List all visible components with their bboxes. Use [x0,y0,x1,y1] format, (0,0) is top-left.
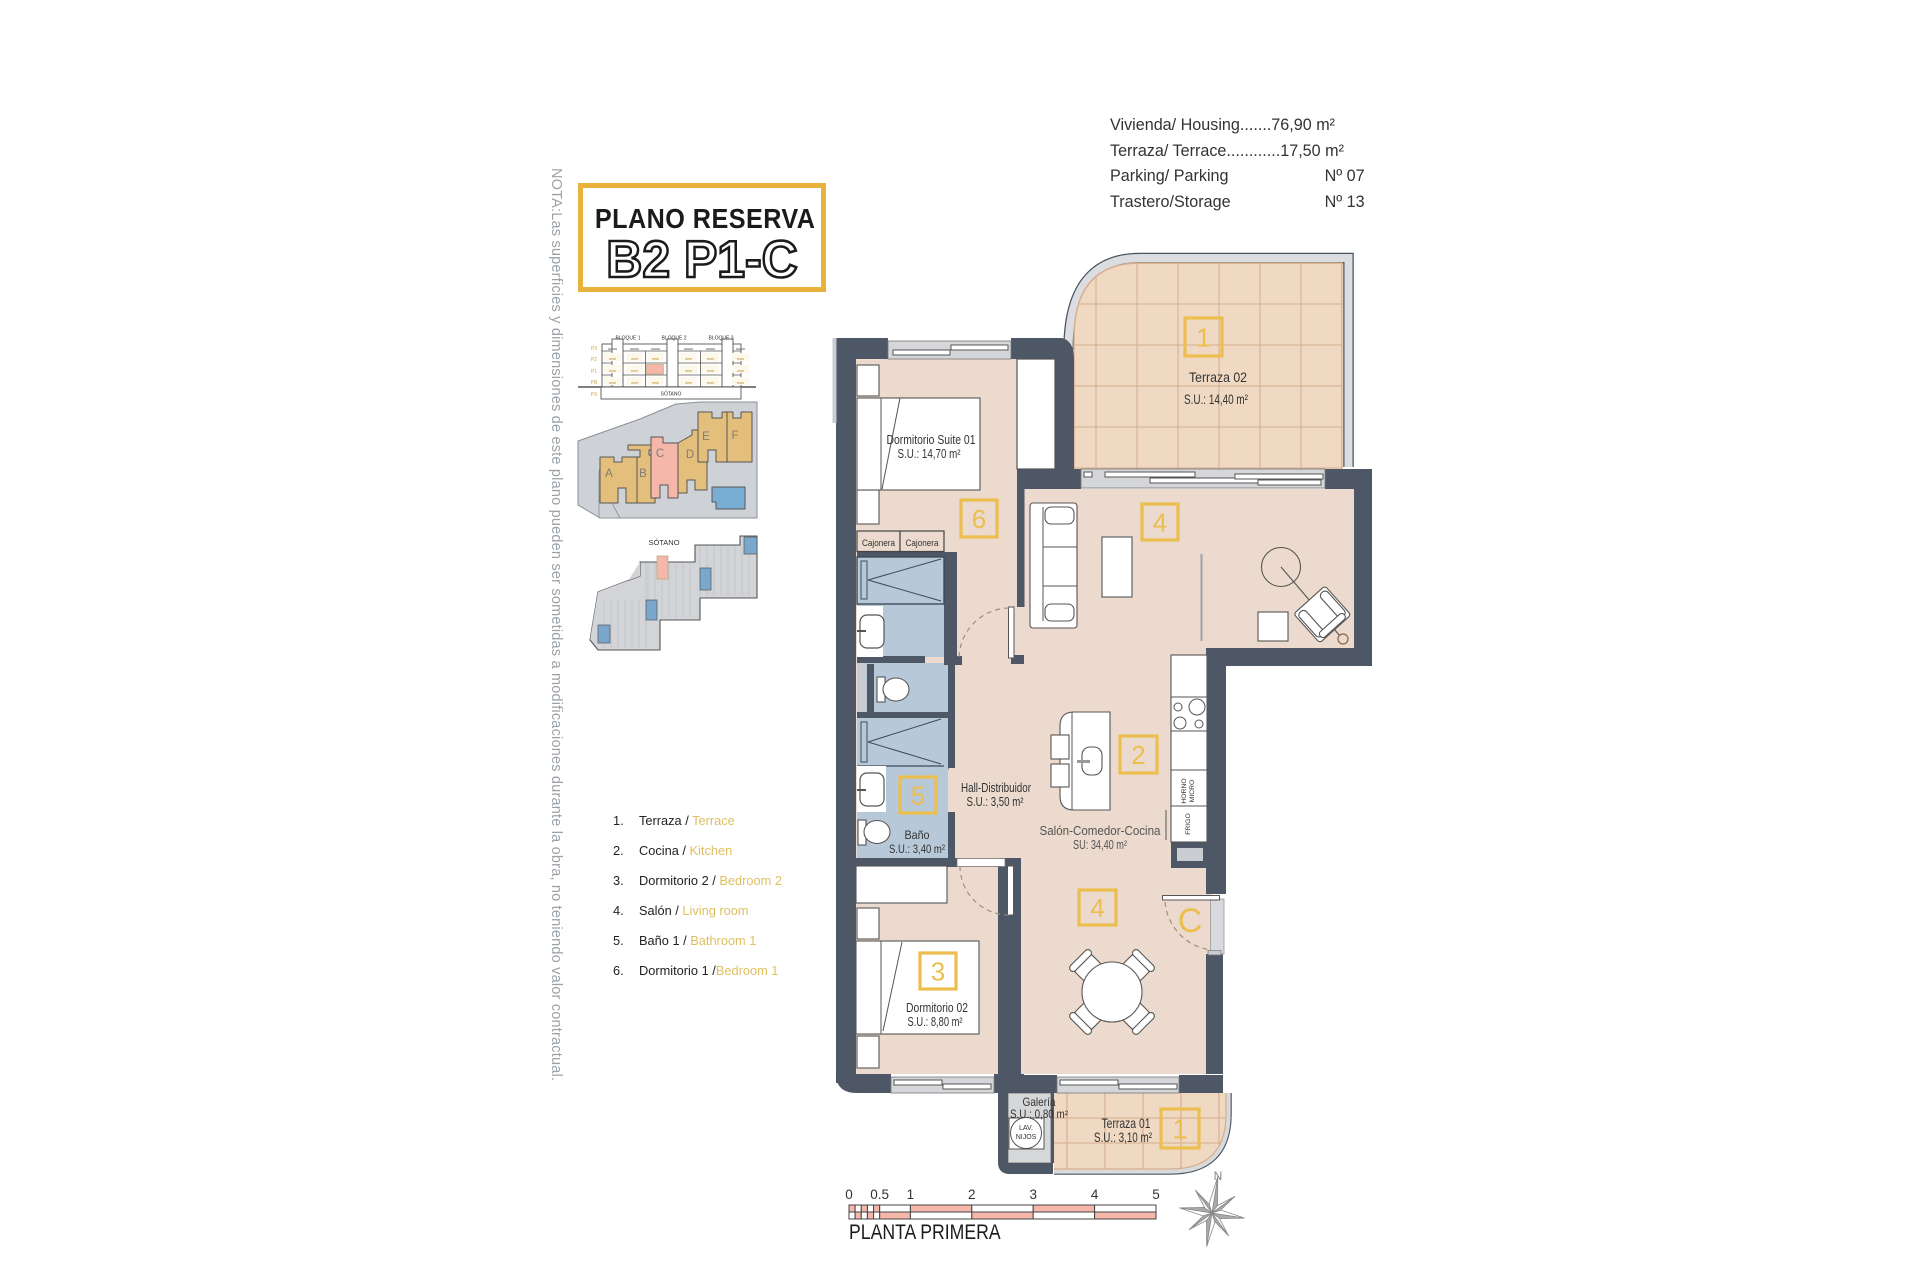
svg-text:2: 2 [1131,740,1145,770]
svg-text:▬▬▬: ▬▬▬ [651,347,660,351]
svg-text:▬▬▬: ▬▬▬ [706,347,715,351]
svg-text:▬▬▬: ▬▬▬ [736,347,745,351]
svg-text:S.U.: 14,70 m²: S.U.: 14,70 m² [898,446,962,461]
svg-text:Baño: Baño [905,828,930,842]
svg-text:▬▬▬: ▬▬▬ [608,347,617,351]
svg-text:▬▬▬: ▬▬▬ [684,347,693,351]
svg-text:BLOQUE 3: BLOQUE 3 [708,336,733,342]
svg-text:▬▬: ▬▬ [609,357,617,361]
svg-text:Terraza 02: Terraza 02 [1189,369,1247,385]
svg-text:▬▬: ▬▬ [631,381,639,385]
svg-text:Galería: Galería [1023,1095,1056,1109]
svg-text:S.U.: 8,80 m²: S.U.: 8,80 m² [908,1015,963,1029]
svg-text:▬▬: ▬▬ [685,357,693,361]
svg-text:S.U.: 3,40 m²: S.U.: 3,40 m² [889,842,945,856]
svg-text:A: A [605,468,613,480]
svg-text:FRIGO: FRIGO [1185,813,1192,835]
svg-text:Salón-Comedor-Cocina: Salón-Comedor-Cocina [1040,823,1162,838]
svg-text:3: 3 [1029,1187,1037,1202]
svg-text:LAV.: LAV. [1019,1125,1033,1132]
svg-text:MICRO: MICRO [1189,780,1196,803]
svg-text:4: 4 [1091,1187,1099,1202]
svg-text:F: F [731,430,738,442]
svg-text:0: 0 [845,1187,853,1202]
svg-text:BLOQUE 1: BLOQUE 1 [615,336,640,342]
svg-text:Dormitorio 02: Dormitorio 02 [906,1001,968,1015]
svg-text:▬▬: ▬▬ [737,369,745,373]
svg-text:S.U.: 0,80 m²: S.U.: 0,80 m² [1010,1109,1068,1121]
svg-text:6: 6 [972,504,986,534]
svg-text:Dormitorio Suite 01: Dormitorio Suite 01 [887,432,976,447]
svg-text:1: 1 [1196,322,1210,352]
svg-text:N: N [1214,1169,1223,1183]
svg-text:▬▬: ▬▬ [609,381,617,385]
svg-text:▬▬▬: ▬▬▬ [630,347,639,351]
svg-text:▬▬: ▬▬ [609,369,617,373]
svg-text:SÓTANO: SÓTANO [648,538,679,547]
svg-text:▬▬: ▬▬ [707,369,715,373]
svg-text:▬▬: ▬▬ [685,369,693,373]
svg-text:P2: P2 [591,357,597,363]
svg-text:3: 3 [931,956,945,986]
svg-text:P3: P3 [591,346,597,352]
svg-text:E: E [702,431,710,443]
svg-text:1: 1 [1172,1114,1188,1145]
svg-text:NIJOS: NIJOS [1016,1134,1037,1141]
svg-text:4: 4 [1090,893,1104,923]
svg-text:PB: PB [591,380,598,386]
svg-text:▬▬: ▬▬ [631,357,639,361]
svg-text:BLOQUE 2: BLOQUE 2 [661,336,686,342]
svg-text:Cajonera: Cajonera [906,538,939,548]
svg-text:D: D [686,449,694,461]
svg-text:▬▬: ▬▬ [737,357,745,361]
svg-text:Hall-Distribuidor: Hall-Distribuidor [961,781,1031,795]
svg-text:S.U.: 3,10 m²: S.U.: 3,10 m² [1094,1129,1152,1145]
svg-text:1: 1 [907,1187,915,1202]
svg-text:▬▬: ▬▬ [737,381,745,385]
svg-text:▬▬: ▬▬ [631,369,639,373]
svg-text:Cajonera: Cajonera [862,538,895,548]
svg-text:SÓTANO: SÓTANO [661,391,682,398]
svg-text:C: C [656,448,664,460]
svg-text:▬▬: ▬▬ [652,381,660,385]
svg-text:HORNO: HORNO [1181,778,1188,803]
svg-text:5: 5 [911,780,925,810]
svg-text:S.U.: 3,50 m²: S.U.: 3,50 m² [967,795,1024,809]
svg-text:S.U.: 14,40 m²: S.U.: 14,40 m² [1184,391,1248,407]
svg-text:4: 4 [1153,507,1167,537]
svg-text:PS: PS [591,392,598,398]
svg-text:P1: P1 [591,369,597,375]
svg-text:▬▬: ▬▬ [707,381,715,385]
svg-text:▬▬: ▬▬ [652,357,660,361]
svg-text:▬▬: ▬▬ [707,357,715,361]
svg-text:2: 2 [968,1187,976,1202]
svg-text:0.5: 0.5 [870,1187,889,1202]
svg-text:SU: 34,40 m²: SU: 34,40 m² [1073,837,1127,852]
svg-text:B: B [639,468,647,480]
svg-text:C: C [1178,902,1203,940]
svg-text:5: 5 [1152,1187,1160,1202]
svg-text:▬▬: ▬▬ [685,381,693,385]
